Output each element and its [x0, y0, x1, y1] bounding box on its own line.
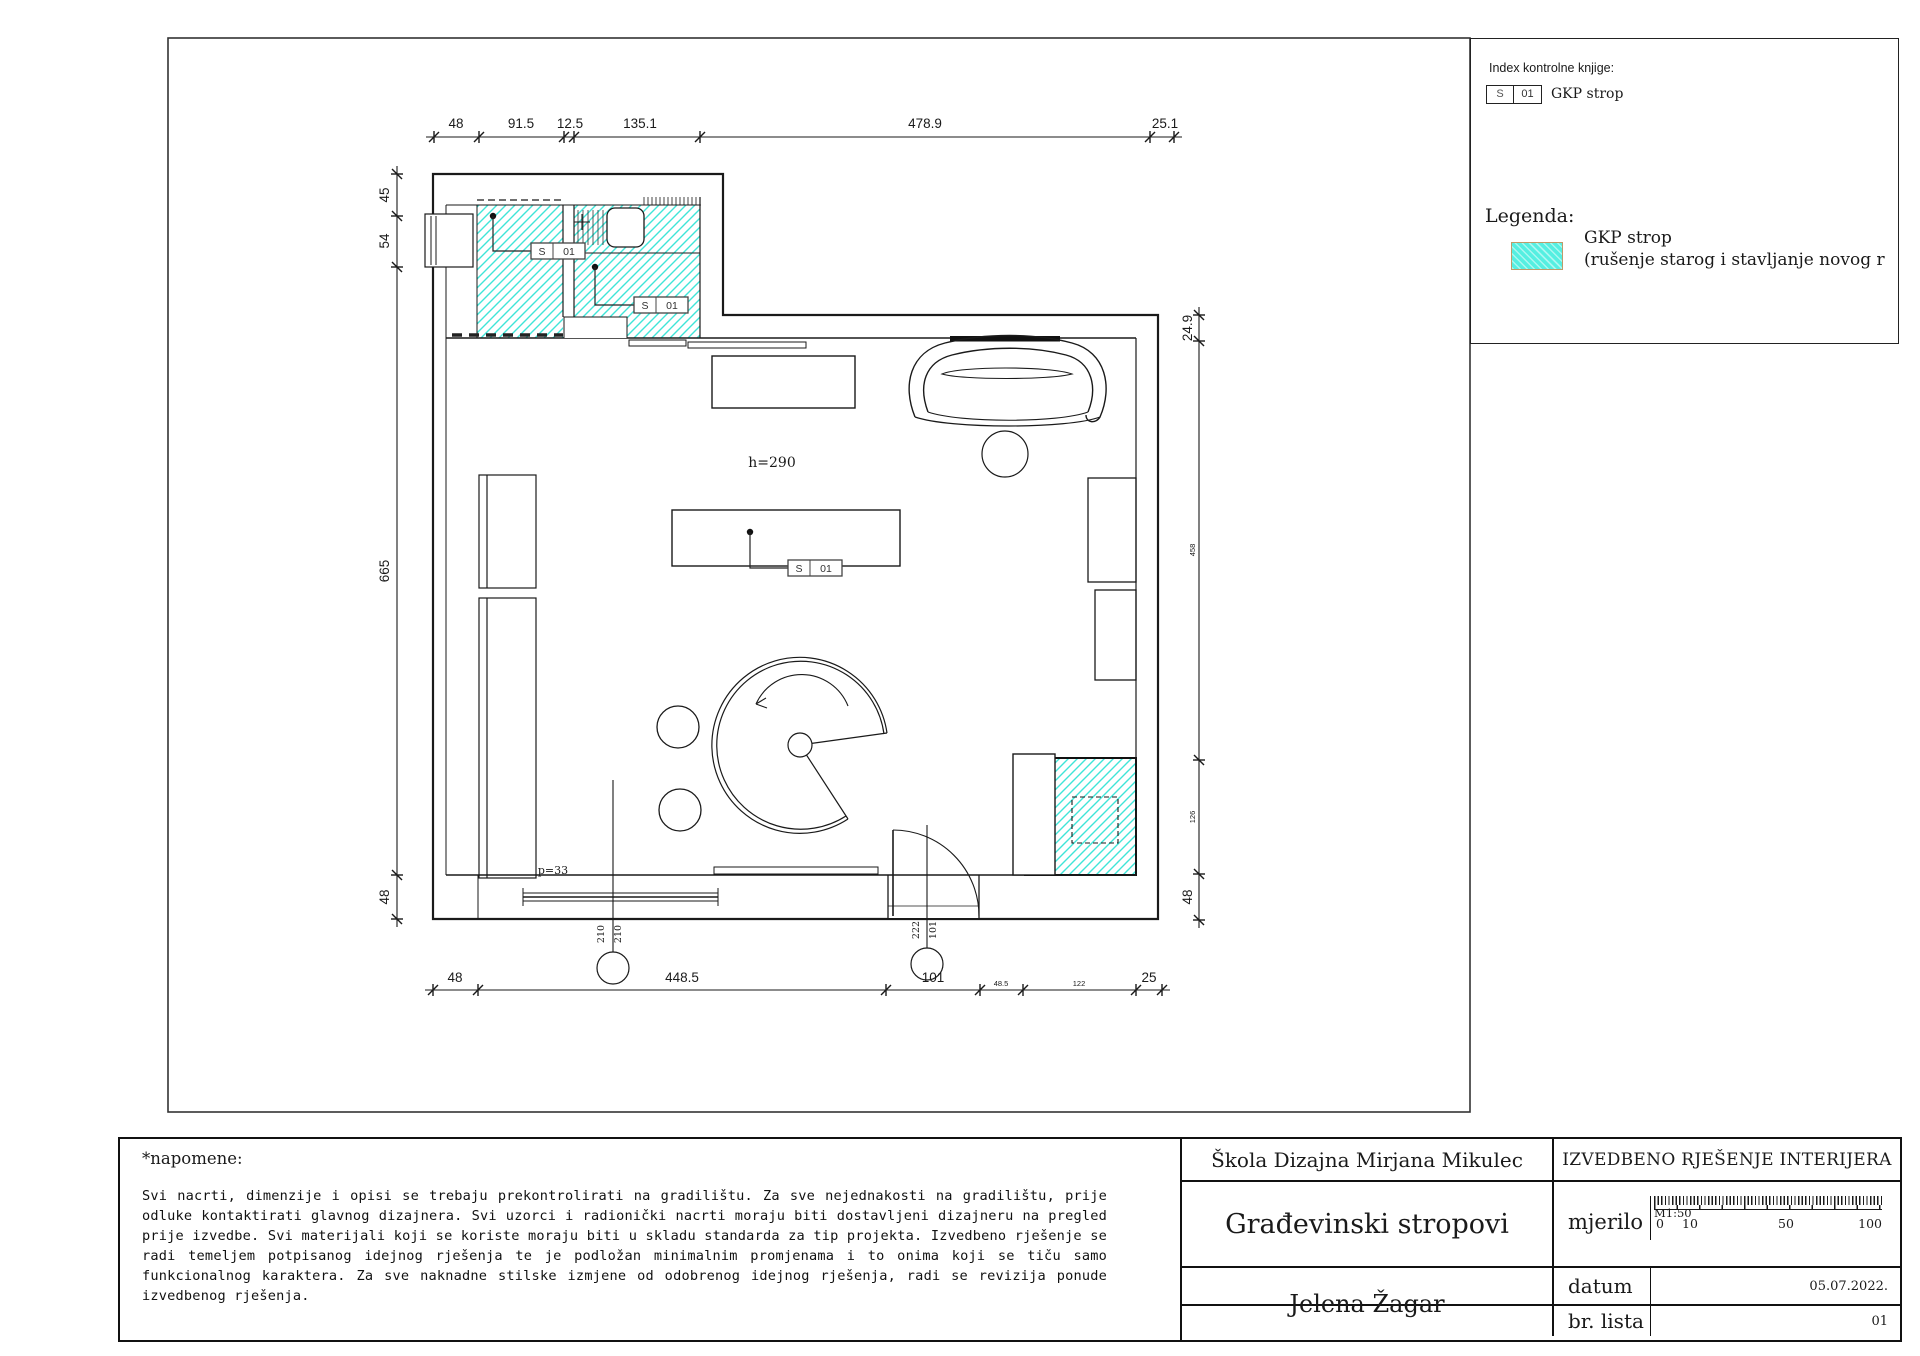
tub — [607, 208, 644, 247]
index-tag-number: 01 — [1514, 86, 1541, 103]
svg-text:48: 48 — [377, 889, 392, 904]
radiator-comb — [643, 197, 701, 205]
cabinet-b — [1095, 590, 1136, 680]
scale-label: mjerilo — [1554, 1210, 1643, 1234]
ruler-tick-10: 10 — [1682, 1216, 1698, 1231]
scale-ruler: 0 10 50 100 — [1654, 1196, 1882, 1210]
svg-text:48: 48 — [447, 970, 462, 985]
svg-text:91.5: 91.5 — [508, 116, 534, 131]
rotation-arrow — [756, 675, 848, 706]
left-window-niche — [425, 214, 473, 267]
notes-panel: *napomene: Svi nacrti, dimenzije i opisi… — [120, 1139, 1182, 1340]
svg-text:45: 45 — [377, 187, 392, 202]
callout-left: 210 210 — [596, 780, 629, 984]
svg-text:122: 122 — [1073, 979, 1086, 988]
floor-label: p=33 — [538, 864, 568, 877]
titleblock-row-date: Jelena Žagar datum 05.07.2022. — [1182, 1268, 1900, 1306]
tag-letter: S — [641, 300, 648, 312]
ruler-tick-100: 100 — [1858, 1216, 1882, 1231]
svg-text:126: 126 — [1188, 811, 1197, 824]
sheet-number-label: br. lista — [1554, 1309, 1650, 1333]
titleblock-row-1: Škola Dizajna Mirjana Mikulec IZVEDBENO … — [1182, 1139, 1900, 1182]
stool-2 — [659, 789, 701, 831]
svg-text:48.5: 48.5 — [994, 979, 1009, 988]
callout-left-a: 210 — [596, 925, 607, 943]
index-tag-box: S 01 — [1486, 85, 1542, 104]
bottom-wall — [478, 754, 1118, 919]
tag-number: 01 — [666, 300, 678, 312]
svg-text:101: 101 — [922, 970, 945, 985]
svg-text:48: 48 — [448, 116, 463, 131]
index-label: Index kontrolne knjige: — [1489, 61, 1614, 75]
cabinet-a — [1088, 478, 1136, 582]
wardrobes — [479, 475, 536, 878]
svg-text:54: 54 — [377, 233, 392, 249]
drawing-sheet: S 01 S 01 S 01 h=290 p=33 — [0, 0, 1920, 1356]
svg-text:478.9: 478.9 — [908, 116, 942, 131]
tag-letter: S — [795, 563, 802, 575]
ruler-tick-50: 50 — [1778, 1216, 1794, 1231]
desk — [712, 356, 855, 408]
dim-labels-top: 48 91.5 12.5 135.1 478.9 25.1 — [448, 116, 1178, 131]
tag-3: S 01 — [747, 529, 842, 576]
legend-box: Index kontrolne knjige: S 01 GKP strop L… — [1470, 38, 1899, 344]
legend-item-title: GKP strop — [1584, 228, 1672, 248]
notes-heading: *napomene: — [142, 1149, 243, 1168]
titleblock-row-sheetno: br. lista 01 — [1182, 1306, 1900, 1336]
title-block: Škola Dizajna Mirjana Mikulec IZVEDBENO … — [1182, 1139, 1900, 1340]
notes-body: Svi nacrti, dimenzije i opisi se trebaju… — [142, 1187, 1107, 1307]
date-value: 05.07.2022. — [1651, 1279, 1900, 1294]
svg-text:135.1: 135.1 — [623, 116, 657, 131]
titleblock-row-2: Građevinski stropovi mjerilo M1:50 0 10 … — [1182, 1182, 1900, 1268]
corner-cabinet — [1013, 754, 1055, 875]
sliding-panel — [714, 867, 878, 874]
tag-number: 01 — [820, 563, 832, 575]
sofa — [909, 336, 1106, 427]
window — [523, 888, 718, 906]
tag-number: 01 — [563, 246, 575, 258]
sheet-title: Građevinski stropovi — [1182, 1182, 1552, 1266]
svg-text:12.5: 12.5 — [557, 116, 583, 131]
svg-text:458: 458 — [1188, 544, 1197, 557]
svg-text:24.9: 24.9 — [1180, 315, 1195, 341]
legend-item-desc: (rušenje starog i stavljanje novog r — [1584, 250, 1896, 270]
svg-text:448.5: 448.5 — [665, 970, 699, 985]
svg-text:25: 25 — [1141, 970, 1156, 985]
dim-labels-left: 45 54 665 48 — [377, 187, 392, 904]
callout-left-b: 210 — [613, 925, 624, 943]
dim-labels-bottom: 48 448.5 101 48.5 122 25 — [447, 970, 1156, 988]
room-height-label: h=290 — [748, 455, 795, 471]
island — [672, 510, 900, 566]
tag-letter: S — [538, 246, 545, 258]
index-entry-name: GKP strop — [1551, 86, 1623, 102]
rotating-stage — [712, 657, 887, 833]
sheet-number-value: 01 — [1651, 1314, 1900, 1329]
date-label: datum — [1554, 1274, 1650, 1298]
svg-text:25.1: 25.1 — [1152, 116, 1178, 131]
hatch-swatch — [1511, 242, 1563, 270]
ruler-tick-0: 0 — [1656, 1216, 1664, 1231]
side-table — [982, 431, 1028, 477]
sheet-footer: *napomene: Svi nacrti, dimenzije i opisi… — [118, 1137, 1902, 1342]
dim-labels-right: 24.9 458 126 48 — [1180, 315, 1197, 905]
svg-text:665: 665 — [377, 560, 392, 583]
block-doorway — [564, 317, 627, 338]
callout-right-a: 222 — [911, 921, 922, 939]
svg-text:48: 48 — [1180, 889, 1195, 904]
project-type: IZVEDBENO RJEŠENJE INTERIJERA — [1562, 1150, 1891, 1170]
school-name: Škola Dizajna Mirjana Mikulec — [1182, 1139, 1552, 1180]
legend-title: Legenda: — [1485, 205, 1574, 227]
callout-right-b: 101 — [928, 921, 939, 939]
stool-1 — [657, 706, 699, 748]
index-tag-letter: S — [1487, 86, 1514, 103]
